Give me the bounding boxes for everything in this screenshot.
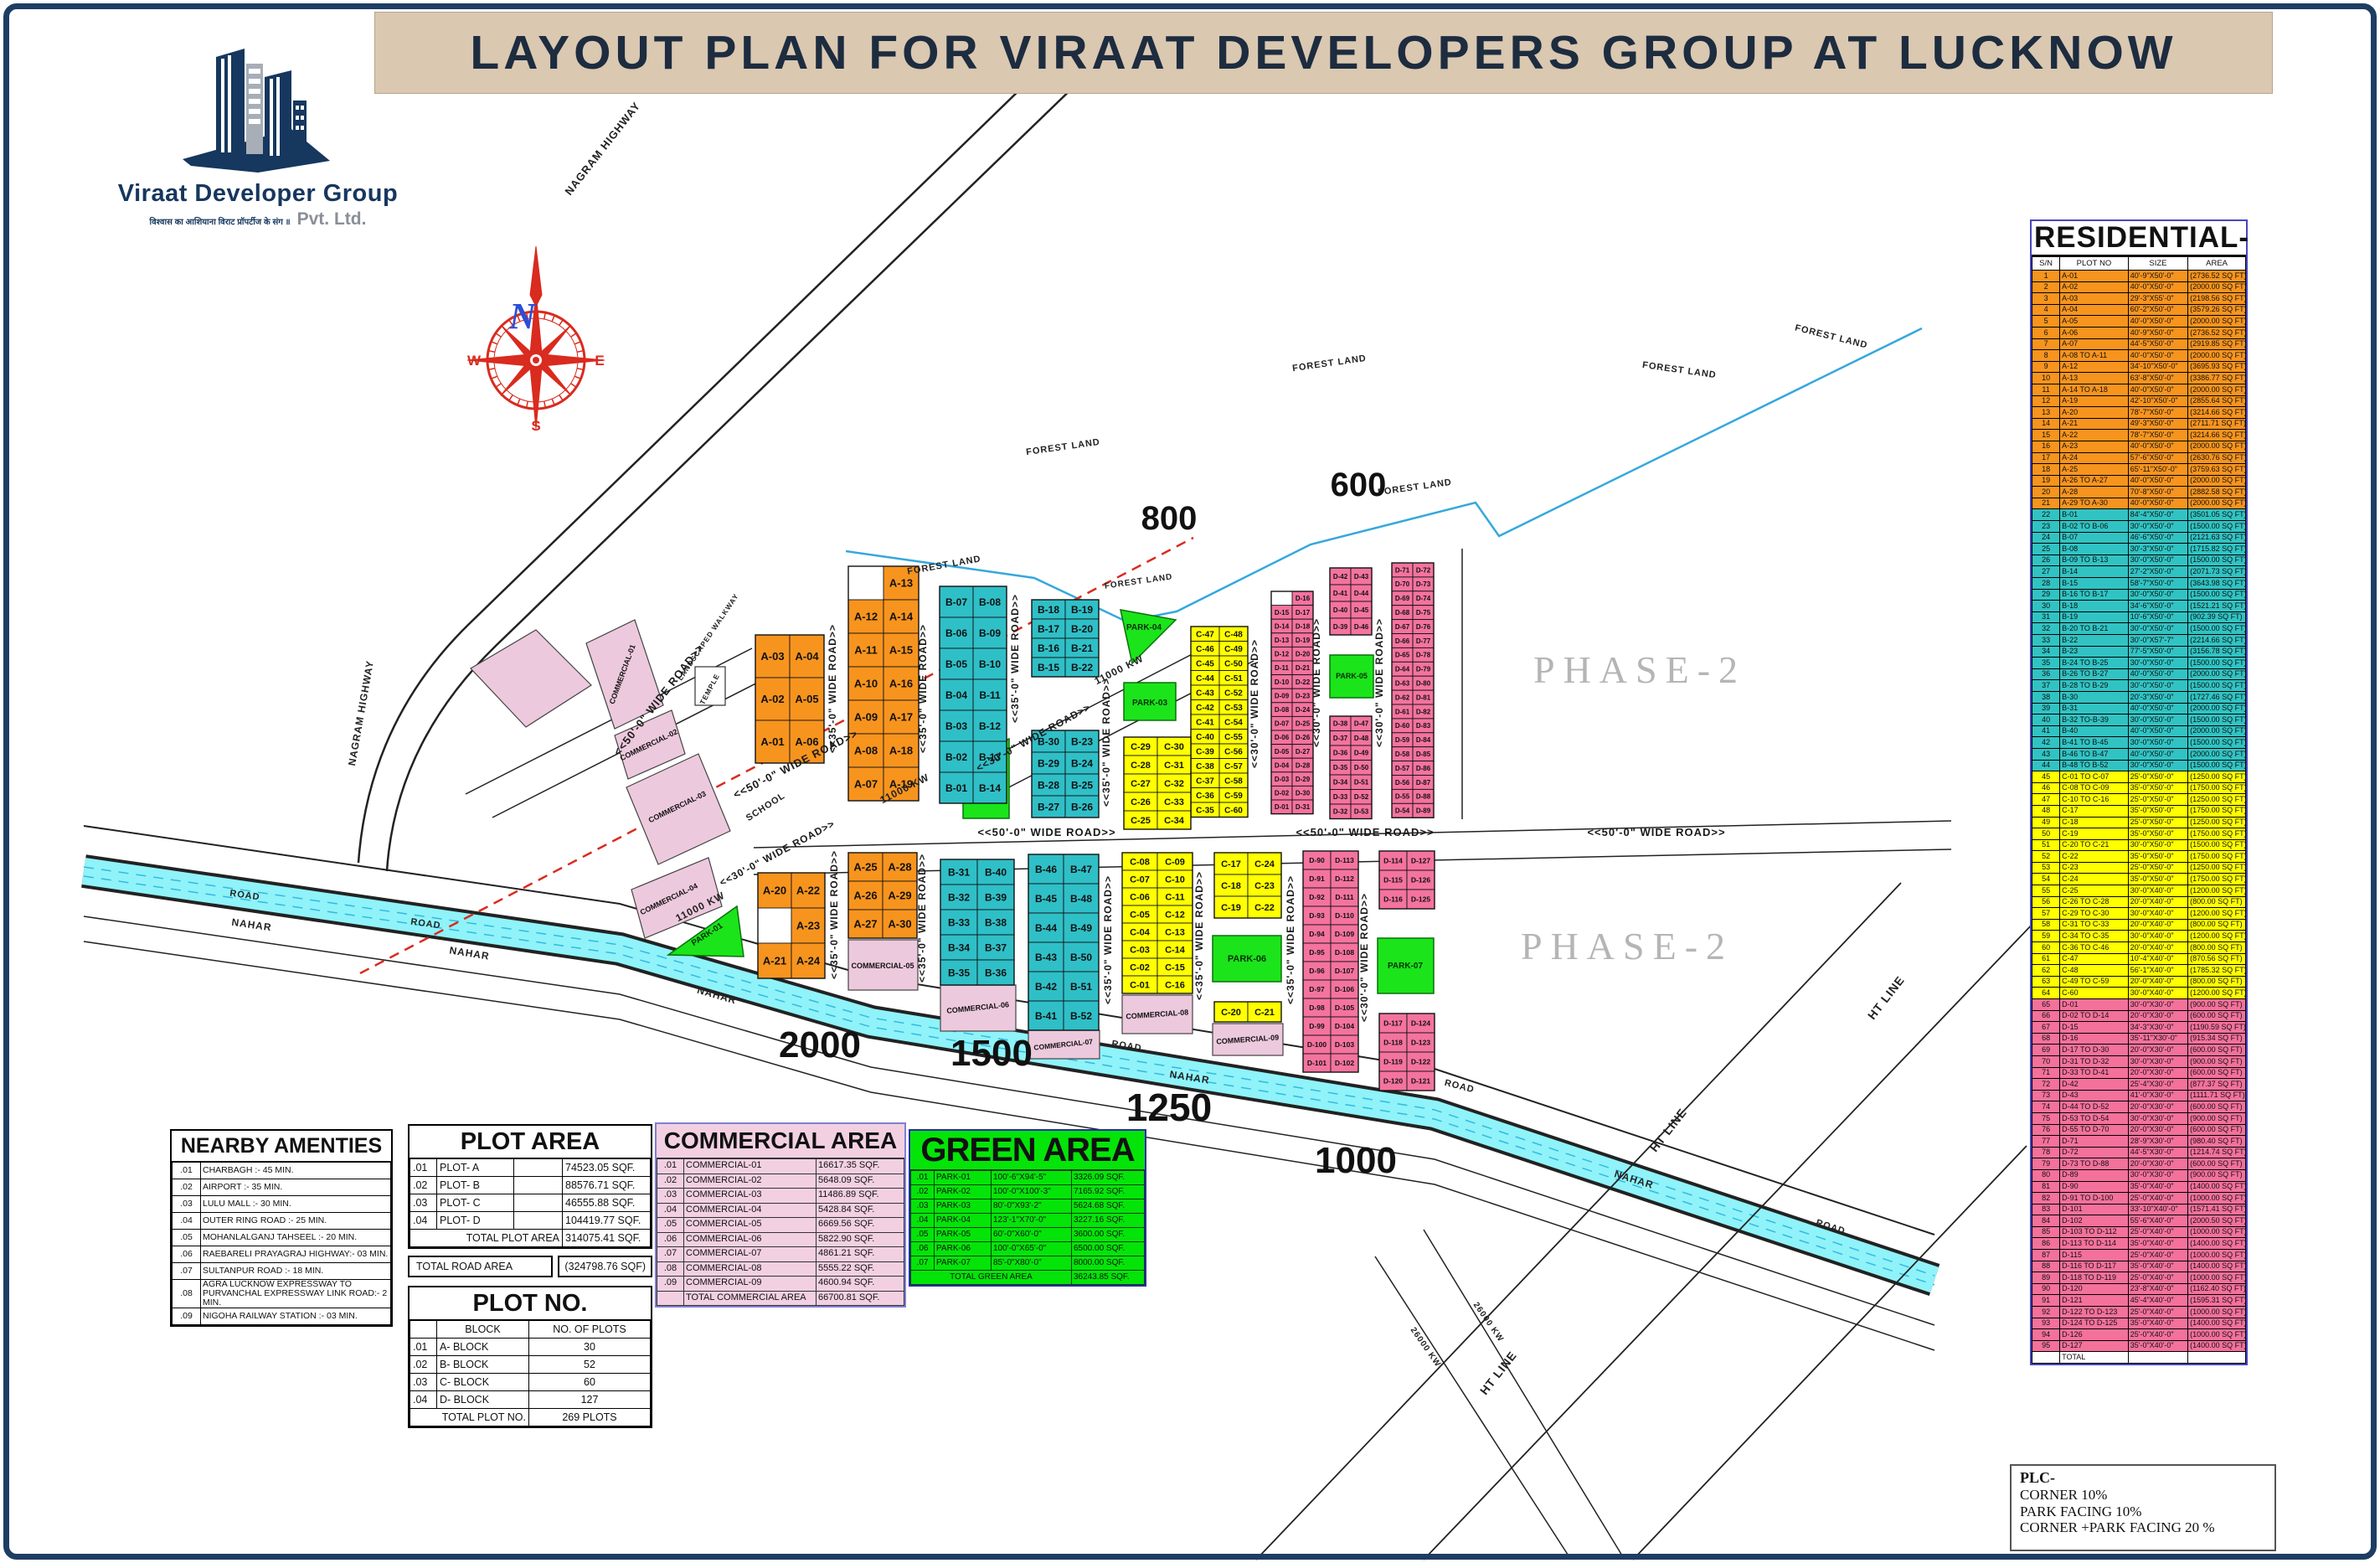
- plot-label: C-03: [1130, 945, 1150, 955]
- green-num: .01: [911, 1171, 935, 1185]
- plot-label: A-04: [795, 650, 819, 663]
- residential-size-cell: 40'-9"X50'-0": [2128, 271, 2187, 282]
- residential-area-cell: (1500.00 SQ FT): [2188, 521, 2246, 533]
- residential-row: 17A-2457'-6"X50'-0"(2630.76 SQ FT): [2032, 452, 2246, 464]
- residential-area-cell: (1500.00 SQ FT): [2188, 714, 2246, 726]
- residential-plot-cell: D-126: [2060, 1329, 2129, 1341]
- residential-area-cell: (1200.00 SQ FT): [2188, 908, 2246, 920]
- plot-label: D-31: [1296, 803, 1311, 811]
- residential-row: 18A-2565'-11"X50'-0"(3759.63 SQ FT): [2032, 464, 2246, 476]
- residential-area-cell: (2121.63 SQ FT): [2188, 532, 2246, 544]
- plot-no-title: PLOT NO.: [410, 1287, 651, 1320]
- plot-cluster-D6: D-114D-127D-115D-126D-116D-125: [1379, 851, 1435, 909]
- plot-no-num: .02: [410, 1356, 437, 1374]
- green-num: .02: [911, 1185, 935, 1199]
- plot-label: A-20: [763, 885, 786, 897]
- residential-row: 87D-11525'-0"X40'-0"(1000.00 SQ FT): [2032, 1250, 2246, 1261]
- residential-area-cell: (2630.76 SQ FT): [2188, 452, 2246, 464]
- residential-sn-cell: 57: [2032, 908, 2060, 920]
- green-row: .05PARK-0560'-0"X60'-0"3600.00 SQF.: [911, 1228, 1145, 1242]
- plot-label: C-29: [1131, 742, 1151, 752]
- plot-label: B-41: [1035, 1010, 1057, 1022]
- residential-sn-cell: 24: [2032, 532, 2060, 544]
- residential-sn-cell: 47: [2032, 794, 2060, 806]
- residential-sn-cell: 36: [2032, 668, 2060, 680]
- residential-sn-cell: 67: [2032, 1022, 2060, 1034]
- plot-label: B-01: [945, 782, 967, 794]
- plot-label: D-116: [1383, 895, 1403, 904]
- plot-no-header-cell: [410, 1321, 437, 1339]
- plot-label: C-42: [1196, 704, 1214, 713]
- residential-area-cell: (2000.00 SQ FT): [2188, 668, 2246, 680]
- residential-sn-cell: 62: [2032, 965, 2060, 977]
- plot-label: C-11: [1165, 892, 1184, 902]
- residential-total-cell: [2128, 1352, 2187, 1364]
- residential-plot-cell: A-05: [2060, 316, 2129, 328]
- plot-label: D-76: [1416, 623, 1431, 631]
- plot-label: D-70: [1395, 580, 1410, 588]
- residential-plot-cell: D-73 TO D-88: [2060, 1158, 2129, 1170]
- residential-area-cell: (1162.40 SQ FT): [2188, 1283, 2246, 1295]
- plot-label: C-27: [1131, 779, 1151, 789]
- commercial-name: COMMERCIAL-01: [684, 1159, 817, 1174]
- residential-row: 50C-1935'-0"X50'-0"(1750.00 SQ FT): [2032, 828, 2246, 840]
- amenity-number-cell: .02: [173, 1179, 201, 1196]
- plot-cluster-D7: D-117D-124D-118D-123D-119D-122D-120D-121: [1379, 1014, 1435, 1091]
- residential-sn-cell: 66: [2032, 1010, 2060, 1022]
- plot-cluster-D3: D-38D-47D-37D-48D-36D-49D-35D-50D-34D-51…: [1330, 716, 1372, 819]
- plot-label: C-41: [1196, 718, 1214, 727]
- road-label: <<35'-0" WIDE ROAD>>: [828, 850, 840, 979]
- residential-plot-cell: D-127: [2060, 1340, 2129, 1352]
- plot-label: D-45: [1354, 606, 1369, 614]
- plot-label: B-43: [1035, 952, 1057, 963]
- residential-row: 5A-0540'-0"X50'-0"(2000.00 SQ FT): [2032, 316, 2246, 328]
- residential-plot-cell: A-14 TO A-18: [2060, 384, 2129, 395]
- plot-label: B-08: [979, 596, 1001, 608]
- commercial-name: COMMERCIAL-09: [684, 1277, 817, 1292]
- commercial-num: .01: [657, 1159, 684, 1174]
- plot-label: D-46: [1354, 623, 1369, 631]
- plot-label: A-24: [796, 955, 821, 967]
- residential-size-cell: 40'-0"X50'-0": [2128, 475, 2187, 487]
- residential-sn-cell: 78: [2032, 1147, 2060, 1158]
- residential-row: 12A-1942'-10"X50'-0"(2855.64 SQ FT): [2032, 395, 2246, 407]
- green-row: .01PARK-01100'-6"X94'-5"3326.09 SQF.: [911, 1171, 1145, 1185]
- plot-label: D-13: [1275, 637, 1290, 644]
- residential-row: 45C-01 TO C-0725'-0"X50'-0"(1250.00 SQ F…: [2032, 771, 2246, 783]
- residential-row: 32B-20 TO B-2130'-0"X50'-0"(1500.00 SQ F…: [2032, 623, 2246, 635]
- residential-row: 3A-0329'-3"X55'-0"(2198.56 SQ FT): [2032, 293, 2246, 305]
- residential-size-cell: 25'-0"X50'-0": [2128, 817, 2187, 828]
- road-label: <<30'-0" WIDE ROAD>>: [1373, 618, 1385, 747]
- plot-label: D-18: [1296, 622, 1311, 630]
- plot-label: D-61: [1395, 708, 1410, 715]
- residential-area-cell: (1000.00 SQ FT): [2188, 1329, 2246, 1341]
- residential-size-cell: 30'-0"X50'-0": [2128, 714, 2187, 726]
- plot-label: B-49: [1070, 922, 1092, 934]
- plot-label: D-33: [1333, 793, 1348, 801]
- residential-row: 41B-4040'-0"X50'-0"(2000.00 SQ FT): [2032, 725, 2246, 737]
- plot-label: D-72: [1416, 566, 1431, 574]
- plot-label: A-16: [889, 678, 913, 690]
- plot-label: D-42: [1333, 573, 1348, 580]
- plot-label: D-26: [1296, 734, 1311, 741]
- plot-label: C-23: [1254, 881, 1275, 891]
- residential-area-cell: (1500.00 SQ FT): [2188, 737, 2246, 749]
- residential-row: 43B-46 TO B-4740'-0"X50'-0"(2000.00 SQ F…: [2032, 748, 2246, 760]
- residential-area-cell: (1400.00 SQ FT): [2188, 1238, 2246, 1250]
- plot-label: D-123: [1411, 1039, 1430, 1047]
- compass-tick: [552, 315, 554, 321]
- residential-sn-cell: 35: [2032, 658, 2060, 669]
- plot-no-header-cell: BLOCK: [437, 1321, 529, 1339]
- residential-plot-cell: C-36 TO C-46: [2060, 942, 2129, 954]
- residential-sn-cell: 14: [2032, 418, 2060, 430]
- park-label: PARK-06: [1228, 954, 1266, 964]
- plot-label: D-51: [1354, 779, 1369, 787]
- residential-area-cell: (1200.00 SQ FT): [2188, 885, 2246, 897]
- plot-no-num: .04: [410, 1391, 437, 1409]
- commercial-area-title: COMMERCIAL AREA: [657, 1124, 904, 1158]
- residential-sn-cell: 84: [2032, 1215, 2060, 1227]
- residential-plot-cell: A-13: [2060, 373, 2129, 384]
- residential-area-cell: (1750.00 SQ FT): [2188, 851, 2246, 863]
- residential-area-cell: (2736.52 SQ FT): [2188, 271, 2246, 282]
- plot-label: D-55: [1395, 793, 1410, 801]
- plot-no-row: .04D- BLOCK127: [410, 1391, 651, 1409]
- plot-label: D-106: [1335, 985, 1354, 993]
- residential-sn-cell: 56: [2032, 896, 2060, 908]
- plot-label: B-18: [1038, 604, 1059, 616]
- plot-label: B-40: [985, 866, 1007, 878]
- residential-sn-cell: 51: [2032, 839, 2060, 851]
- residential-sn-cell: 43: [2032, 748, 2060, 760]
- plot-label: B-27: [1038, 801, 1059, 812]
- plot-label: C-31: [1164, 761, 1184, 771]
- residential-area-cell: (2000.00 SQ FT): [2188, 725, 2246, 737]
- green-num: .06: [911, 1242, 935, 1256]
- residential-area-cell: (2000.00 SQ FT): [2188, 350, 2246, 362]
- plot-label: D-16: [1296, 595, 1311, 602]
- residential-row: 35B-24 TO B-2530'-0"X50'-0"(1500.00 SQ F…: [2032, 658, 2246, 669]
- residential-area-cell: (877.37 SQ FT): [2188, 1079, 2246, 1091]
- commercial-total-blank: [657, 1291, 684, 1306]
- residential-sn-cell: 28: [2032, 578, 2060, 590]
- residential-area-cell: (2855.64 SQ FT): [2188, 395, 2246, 407]
- residential-row: 95D-12735'-0"X40'-0"(1400.00 SQ FT): [2032, 1340, 2246, 1352]
- map-label: HT LINE: [1865, 973, 1907, 1022]
- residential-area-cell: (900.00 SQ FT): [2188, 1055, 2246, 1067]
- amenity-number-cell: .04: [173, 1213, 201, 1230]
- commercial-value: 4600.94 SQF.: [817, 1277, 904, 1292]
- residential-size-cell: 35'-0"X50'-0": [2128, 805, 2187, 817]
- residential-plot-cell: C-29 TO C-30: [2060, 908, 2129, 920]
- plot-label: D-119: [1383, 1058, 1403, 1066]
- residential-size-cell: 63'-8"X50'-0": [2128, 373, 2187, 384]
- residential-size-cell: 35'-0"X40'-0": [2128, 1340, 2187, 1352]
- kw-26000-line: [1375, 1256, 1571, 1560]
- plot-label: C-14: [1165, 945, 1186, 955]
- residential-plot-cell: B-46 TO B-47: [2060, 748, 2129, 760]
- road-label: <<35'-0" WIDE ROAD>>: [1009, 594, 1021, 723]
- plot-label: B-19: [1071, 604, 1093, 616]
- plot-label: D-112: [1335, 874, 1354, 883]
- residential-header-cell: AREA: [2188, 257, 2246, 271]
- residential-sn-cell: 89: [2032, 1272, 2060, 1284]
- residential-size-cell: 60'-2"X50'-0": [2128, 304, 2187, 316]
- residential-plot-cell: B-20 TO B-21: [2060, 623, 2129, 635]
- plot-area-num: .03: [410, 1194, 437, 1212]
- residential-size-cell: 30'-0"X40'-0": [2128, 908, 2187, 920]
- residential-row: 26B-09 TO B-1330'-0"X50'-0"(1500.00 SQ F…: [2032, 555, 2246, 566]
- residential-plot-cell: A-06: [2060, 327, 2129, 338]
- residential-row: 1A-0140'-9"X50'-0"(2736.52 SQ FT): [2032, 271, 2246, 282]
- residential-sn-cell: 41: [2032, 725, 2060, 737]
- residential-area-cell: (3579.26 SQ FT): [2188, 304, 2246, 316]
- residential-plot-cell: B-19: [2060, 611, 2129, 623]
- plot-label: C-56: [1224, 747, 1243, 756]
- map-label: 26000 KW: [1409, 1326, 1443, 1370]
- residential-area-cell: (1500.00 SQ FT): [2188, 839, 2246, 851]
- residential-plot-cell: D-33 TO D-41: [2060, 1067, 2129, 1079]
- residential-area-cell: (2000.00 SQ FT): [2188, 703, 2246, 714]
- plot-label: D-120: [1383, 1077, 1403, 1086]
- plot-label: D-06: [1275, 734, 1290, 741]
- residential-sn-cell: 79: [2032, 1158, 2060, 1170]
- residential-area-cell: (600.00 SQ FT): [2188, 1045, 2246, 1056]
- plot-label: C-43: [1196, 689, 1214, 698]
- residential-area-cell: (1000.00 SQ FT): [2188, 1307, 2246, 1318]
- plot-label: D-104: [1335, 1022, 1354, 1030]
- site-plan: COMMERCIAL-01COMMERCIAL-02COMMERCIAL-03C…: [0, 0, 2380, 1563]
- commercial-total-label: TOTAL COMMERCIAL AREA: [684, 1291, 817, 1306]
- residential-size-cell: 55'-6"X40'-0": [2128, 1215, 2187, 1227]
- residential-size-cell: 25'-0"X40'-0": [2128, 1193, 2187, 1204]
- plot-no-num: .01: [410, 1339, 437, 1356]
- residential-size-cell: 20'-0"X30'-0": [2128, 1045, 2187, 1056]
- residential-sn-cell: 75: [2032, 1112, 2060, 1124]
- residential-size-cell: 27'-2"X50'-0": [2128, 566, 2187, 578]
- map-label: NAHAR: [231, 916, 273, 934]
- plot-label: D-91: [1309, 874, 1325, 883]
- green-area-title: GREEN AREA: [910, 1131, 1145, 1170]
- plot-label: C-12: [1165, 910, 1185, 920]
- green-value: 3227.16 SQF.: [1072, 1214, 1145, 1228]
- residential-plot-cell: A-22: [2060, 430, 2129, 441]
- residential-sn-cell: 39: [2032, 703, 2060, 714]
- residential-plot-cell: C-47: [2060, 953, 2129, 965]
- plot-label: D-25: [1296, 720, 1311, 728]
- amenity-row: .09NIGOHA RAILWAY STATION :- 03 MIN.: [173, 1308, 391, 1325]
- plot-label: D-02: [1275, 790, 1290, 797]
- amenity-row: .02AIRPORT :- 35 MIN.: [173, 1179, 391, 1196]
- residential-row: 22B-0184'-4"X50'-0"(3501.05 SQ FT): [2032, 509, 2246, 521]
- amenity-text-cell: CHARBAGH :- 45 MIN.: [201, 1163, 391, 1179]
- map-label: 26000 KW: [1471, 1301, 1506, 1344]
- green-value: 8000.00 SQF.: [1072, 1256, 1145, 1271]
- plot-cluster-B3: B-30B-23B-29B-24B-28B-25B-27B-26: [1032, 730, 1099, 818]
- plot-label: D-113: [1335, 856, 1354, 864]
- residential-size-cell: 25'-0"X40'-0": [2128, 1329, 2187, 1341]
- residential-plot-cell: B-08: [2060, 544, 2129, 555]
- plot-label: D-22: [1296, 678, 1311, 686]
- residential-area-cell: (3695.93 SQ FT): [2188, 361, 2246, 373]
- residential-sn-cell: 16: [2032, 441, 2060, 452]
- residential-area-cell: (1000.00 SQ FT): [2188, 1193, 2246, 1204]
- plot-no-total-value: 269 PLOTS: [529, 1409, 651, 1426]
- residential-sn-cell: 13: [2032, 407, 2060, 419]
- plot-no-row: .03C- BLOCK60: [410, 1374, 651, 1391]
- residential-size-cell: 20'-0"X30'-0": [2128, 1124, 2187, 1136]
- amenity-number-cell: .01: [173, 1163, 201, 1179]
- commercial-value: 4861.21 SQF.: [817, 1247, 904, 1262]
- residential-area-cell: (3386.77 SQ FT): [2188, 373, 2246, 384]
- residential-size-cell: 25'-4"X30'-0": [2128, 1079, 2187, 1091]
- plot-no-total-label: TOTAL PLOT NO.: [410, 1409, 529, 1426]
- residential-row: 6A-0640'-9"X50'-0"(2736.52 SQ FT): [2032, 327, 2246, 338]
- plot-label: C-57: [1224, 762, 1243, 771]
- residential-row: 58C-31 TO C-3320'-0"X40'-0"(800.00 SQ FT…: [2032, 919, 2246, 931]
- residential-sn-cell: 85: [2032, 1226, 2060, 1238]
- plot-label: A-13: [889, 577, 913, 590]
- residential-plot-cell: A-26 TO A-27: [2060, 475, 2129, 487]
- residential-size-cell: 25'-0"X40'-0": [2128, 1272, 2187, 1284]
- road-area-label: TOTAL ROAD AREA: [408, 1256, 553, 1277]
- residential-area-cell: (1500.00 SQ FT): [2188, 589, 2246, 601]
- plot-label: B-10: [979, 658, 1001, 670]
- plot-label: B-16: [1038, 642, 1059, 654]
- green-name: PARK-01: [935, 1171, 992, 1185]
- plot-label: C-60: [1224, 806, 1243, 815]
- green-name: PARK-03: [935, 1199, 992, 1214]
- residential-row: 15A-2278'-7"X50'-0"(3214.66 SQ FT): [2032, 430, 2246, 441]
- plot-label: D-100: [1307, 1040, 1327, 1049]
- plot-label: D-105: [1335, 1003, 1354, 1012]
- plot-label: D-127: [1411, 857, 1430, 865]
- road-label: <<35'-0" WIDE ROAD>>: [1193, 871, 1205, 1000]
- green-total-row: TOTAL GREEN AREA36243.85 SQF.: [911, 1271, 1145, 1285]
- amenity-row: .05MOHANLALGANJ TAHSEEL :- 20 MIN.: [173, 1230, 391, 1246]
- residential-sn-cell: 12: [2032, 395, 2060, 407]
- plot-label: B-33: [948, 916, 970, 928]
- residential-plot-cell: B-14: [2060, 566, 2129, 578]
- residential-row: 30B-1834'-6"X50'-0"(1521.21 SQ FT): [2032, 601, 2246, 612]
- green-name: PARK-04: [935, 1214, 992, 1228]
- plot-label: C-53: [1224, 704, 1243, 713]
- residential-plot-cell: A-03: [2060, 293, 2129, 305]
- residential-row: 40B-32 TO-B-3930'-0"X50'-0"(1500.00 SQ F…: [2032, 714, 2246, 726]
- residential-row: 14A-2149'-3"X50'-0"(2711.71 SQ FT): [2032, 418, 2246, 430]
- residential-plot-cell: C-23: [2060, 862, 2129, 874]
- plot-area-name: PLOT- C: [437, 1194, 514, 1212]
- plot-label: C-59: [1224, 792, 1243, 801]
- residential-size-cell: 29'-3"X55'-0": [2128, 293, 2187, 305]
- road-label: <<35'-0" WIDE ROAD>>: [827, 624, 838, 753]
- plot-label: B-42: [1035, 981, 1057, 993]
- commercial-area-label: COMMERCIAL-05: [851, 962, 914, 970]
- residential-plot-cell: D-02 TO D-14: [2060, 1010, 2129, 1022]
- residential-plot-cell: C-31 TO C-33: [2060, 919, 2129, 931]
- amenity-text-cell: OUTER RING ROAD :- 25 MIN.: [201, 1213, 391, 1230]
- residential-row: 72D-4225'-4"X30'-0"(877.37 SQ FT): [2032, 1079, 2246, 1091]
- residential-row: 21A-29 TO A-3040'-0"X50'-0"(2000.00 SQ F…: [2032, 498, 2246, 509]
- residential-size-cell: 30'-0"X50'-0": [2128, 555, 2187, 566]
- amenity-text-cell: RAEBARELI PRAYAGRAJ HIGHWAY:- 03 MIN.: [201, 1246, 391, 1263]
- plot-cluster-D2: D-42D-43D-41D-44D-40D-45D-39D-46: [1330, 568, 1372, 635]
- residential-sn-cell: 54: [2032, 874, 2060, 885]
- residential-area-cell: (1000.00 SQ FT): [2188, 1226, 2246, 1238]
- plot-label: D-57: [1395, 765, 1410, 772]
- residential-row: 7A-0744'-5"X50'-0"(2919.85 SQ FT): [2032, 338, 2246, 350]
- plot-area-spacer: [514, 1194, 563, 1212]
- park-label: PARK-07: [1388, 962, 1423, 971]
- residential-row: 92D-122 TO D-12325'-0"X40'-0"(1000.00 SQ…: [2032, 1307, 2246, 1318]
- residential-sn-cell: 20: [2032, 487, 2060, 498]
- plot-area-value: 46555.88 SQF.: [563, 1194, 651, 1212]
- residential-row: 78D-7244'-5"X30'-0"(1214.74 SQ FT): [2032, 1147, 2246, 1158]
- plot-label: D-118: [1383, 1039, 1403, 1047]
- residential-size-cell: 10'-4"X40'-0": [2128, 953, 2187, 965]
- plot-label: D-41: [1333, 590, 1348, 597]
- residential-plot-cell: A-19: [2060, 395, 2129, 407]
- plot-label: B-07: [945, 596, 967, 608]
- residential-sn-cell: 76: [2032, 1124, 2060, 1136]
- residential-sn-cell: 45: [2032, 771, 2060, 783]
- plot-label: C-18: [1221, 881, 1241, 891]
- plot-area-spacer: [514, 1177, 563, 1194]
- plot-label: D-50: [1354, 764, 1369, 771]
- plot-label: A-18: [889, 745, 913, 757]
- plot-label: D-124: [1411, 1019, 1430, 1028]
- residential-area-cell: (900.00 SQ FT): [2188, 1112, 2246, 1124]
- residential-size-cell: 70'-8"X50'-0": [2128, 487, 2187, 498]
- commercial-area-table: COMMERCIAL AREA .01COMMERCIAL-0116617.35…: [655, 1122, 906, 1308]
- residential-row: 75D-53 TO D-5430'-0"X30'-0"(900.00 SQ FT…: [2032, 1112, 2246, 1124]
- residential-row: 13A-2078'-7"X50'-0"(3214.66 SQ FT): [2032, 407, 2246, 419]
- residential-row: 9A-1234'-10"X50'-0"(3695.93 SQ FT): [2032, 361, 2246, 373]
- residential-row: 38B-3020'-3"X50'-0"(1727.46 SQ FT): [2032, 691, 2246, 703]
- plot-label: B-03: [945, 720, 967, 732]
- residential-sn-cell: 6: [2032, 327, 2060, 338]
- distance-number: 1000: [1315, 1140, 1397, 1181]
- plot-label: A-10: [854, 678, 878, 690]
- plot-label: B-22: [1071, 662, 1093, 673]
- residential-total-cell: [2032, 1352, 2060, 1364]
- plot-cluster-B2: B-18B-19B-17B-20B-16B-21B-15B-22: [1032, 600, 1099, 677]
- road-label: <<35'-0" WIDE ROAD>>: [1102, 875, 1114, 1004]
- residential-area-cell: (1214.74 SQ FT): [2188, 1147, 2246, 1158]
- page-title: LAYOUT PLAN FOR VIRAAT DEVELOPERS GROUP …: [470, 25, 2177, 80]
- residential-row: 90D-12023'-8"X40'-0"(1162.40 SQ FT): [2032, 1283, 2246, 1295]
- residential-size-cell: 33'-10"X40'-0": [2128, 1204, 2187, 1215]
- residential-area-cell: (800.00 SQ FT): [2188, 942, 2246, 954]
- green-num: .03: [911, 1199, 935, 1214]
- plot-area-num: .01: [410, 1159, 437, 1177]
- residential-area-cell: (800.00 SQ FT): [2188, 919, 2246, 931]
- residential-area-cell: (2000.00 SQ FT): [2188, 748, 2246, 760]
- plot-label: A-25: [853, 861, 877, 874]
- commercial-row: .07COMMERCIAL-074861.21 SQF.: [657, 1247, 904, 1262]
- residential-row: 88D-116 TO D-11735'-0"X40'-0"(1400.00 SQ…: [2032, 1261, 2246, 1272]
- plot-label: A-07: [854, 778, 878, 791]
- residential-row: 8A-08 TO A-1140'-0"X50'-0"(2000.00 SQ FT…: [2032, 350, 2246, 362]
- green-size: 85'-0"X80'-0": [992, 1256, 1072, 1271]
- plot-label: C-30: [1164, 742, 1184, 752]
- road-label: <<50'-0" WIDE ROAD>>: [1587, 826, 1725, 838]
- amenity-text-cell: MOHANLALGANJ TAHSEEL :- 20 MIN.: [201, 1230, 391, 1246]
- residential-size-cell: 40'-0"X50'-0": [2128, 384, 2187, 395]
